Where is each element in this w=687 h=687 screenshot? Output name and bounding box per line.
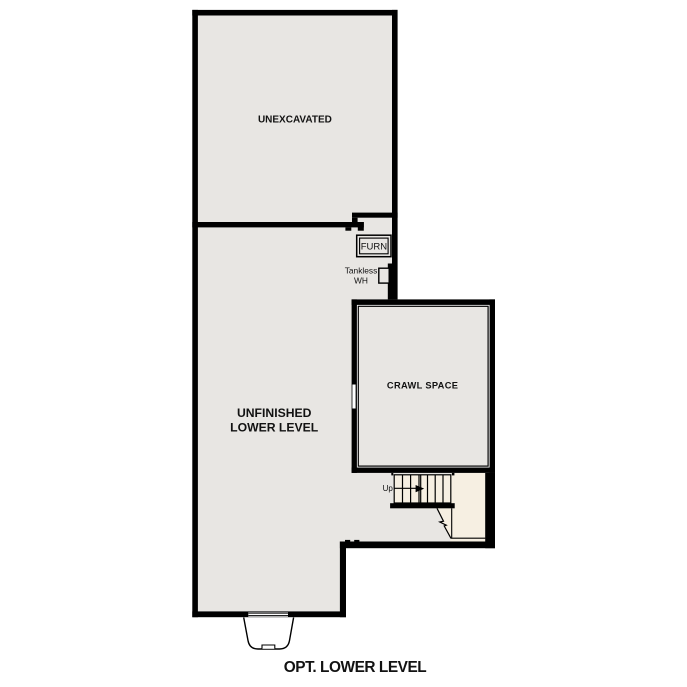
svg-text:UNFINISHED: UNFINISHED (237, 406, 312, 420)
svg-text:CRAWL SPACE: CRAWL SPACE (387, 381, 458, 391)
svg-text:OPT. LOWER LEVEL: OPT. LOWER LEVEL (284, 659, 426, 676)
svg-text:UNEXCAVATED: UNEXCAVATED (258, 114, 332, 125)
svg-text:WH: WH (354, 275, 368, 285)
svg-text:Up: Up (383, 484, 394, 493)
svg-text:Tankless: Tankless (345, 266, 378, 276)
svg-text:LOWER LEVEL: LOWER LEVEL (230, 421, 319, 435)
svg-text:FURN: FURN (361, 241, 388, 252)
